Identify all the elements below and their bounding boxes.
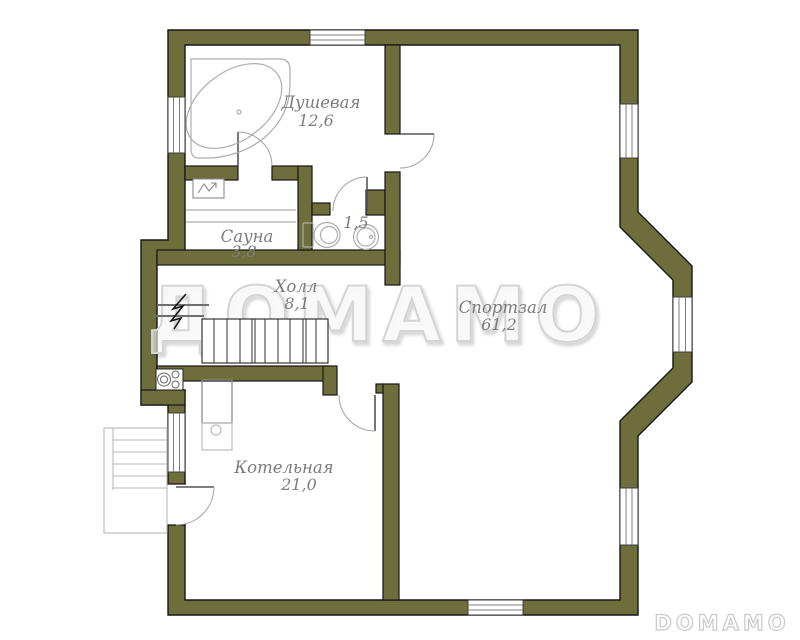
wall-shower-gym-upper <box>385 45 400 134</box>
stove-icon <box>156 369 183 390</box>
door-shower-gym <box>400 134 434 168</box>
door-hall-boiler <box>339 395 375 431</box>
wall-sauna-top-left <box>185 166 238 180</box>
room-area-sauna: 3,8 <box>231 242 256 261</box>
room-area-gym: 61,2 <box>481 315 517 334</box>
window-left-lower <box>168 413 185 472</box>
window-bay <box>673 297 692 352</box>
wall-wetzone-bottom <box>157 250 400 265</box>
wall-sauna-top-right <box>272 166 298 180</box>
window-left-upper <box>168 97 185 153</box>
room-area-hall: 8,1 <box>284 294 309 313</box>
wall-wc-top-block <box>366 190 385 215</box>
floor-plan: ДОМАМО <box>0 0 800 640</box>
window-top <box>310 30 365 45</box>
room-area-shower: 12,6 <box>298 111 334 130</box>
wall-boiler-gym-divider <box>383 384 399 600</box>
window-right-lower <box>620 488 638 545</box>
door-sauna <box>238 132 272 166</box>
wall-sauna-wc-divider <box>298 166 312 250</box>
wall-shower-gym-lower <box>385 172 400 285</box>
room-area-wc: 1,5 <box>343 213 368 232</box>
staircase-icon <box>202 319 328 363</box>
wall-wc-top <box>312 203 330 215</box>
sauna-heater-icon <box>193 179 224 198</box>
room-label-shower: Душевая <box>281 93 361 112</box>
window-bottom <box>468 600 523 615</box>
window-right-upper <box>620 104 638 158</box>
entry-door <box>167 484 215 525</box>
wall-hall-step <box>323 366 337 395</box>
bathtub-icon <box>170 46 297 165</box>
sauna-bench-lines <box>186 210 296 222</box>
entry-porch-steps-icon <box>104 428 167 533</box>
floor-plan-drawing: ДОМАМО <box>0 0 800 640</box>
boiler-unit-icon <box>202 380 232 450</box>
room-area-boiler: 21,0 <box>280 475 317 494</box>
wall-stove-niche-bottom <box>141 390 185 405</box>
logo-text: DOMAMO <box>654 611 789 635</box>
door-wc <box>333 177 367 211</box>
